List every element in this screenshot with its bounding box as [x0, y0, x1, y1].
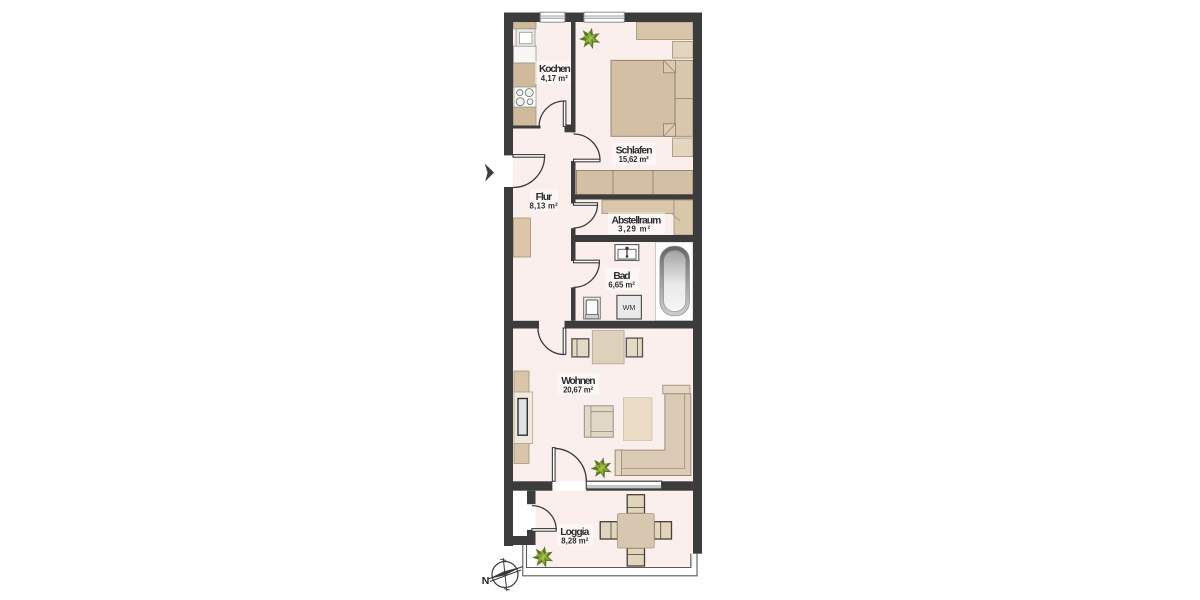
svg-text:15,62 m²: 15,62 m² [619, 155, 649, 164]
svg-text:8,13 m²: 8,13 m² [530, 202, 559, 211]
svg-text:6,65 m²: 6,65 m² [608, 281, 635, 290]
svg-text:N: N [482, 575, 490, 587]
svg-text:4,17 m²: 4,17 m² [541, 74, 568, 83]
svg-text:20,67 m²: 20,67 m² [563, 386, 593, 395]
svg-text:8,28 m²: 8,28 m² [561, 536, 588, 545]
svg-text:WM: WM [623, 303, 636, 312]
svg-text:3,29 m²: 3,29 m² [618, 224, 650, 233]
